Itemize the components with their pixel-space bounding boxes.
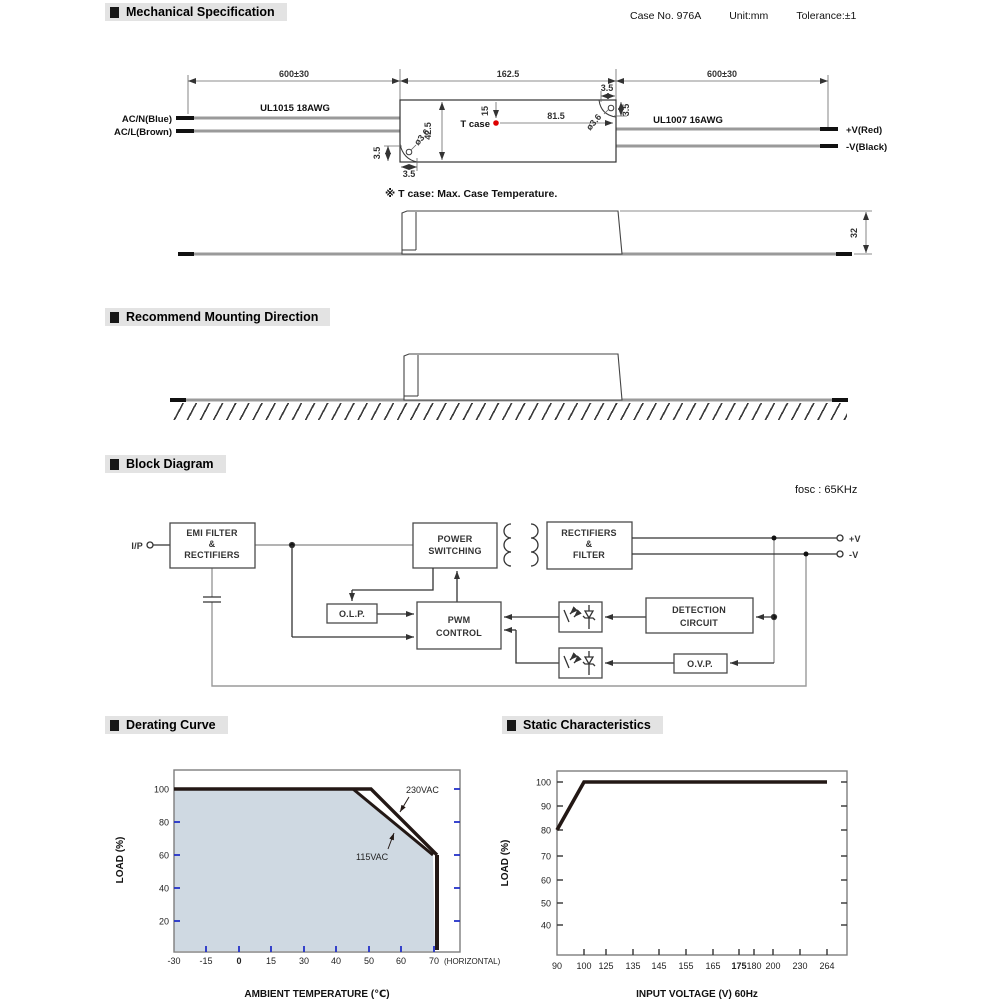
datasheet-page: Mechanical Specification Case No. 976A U… [0, 0, 1000, 1000]
rf-line1: RECTIFIERS [561, 528, 617, 538]
tcase-label: T case [460, 119, 490, 130]
case-top-view: 42.5 T case 15 81.5 ø3.6 3.5 3.5 ø3.6 [372, 83, 631, 179]
x-tick-label: 90 [552, 961, 562, 971]
derating-chart: 100 80 60 40 20 -30 -15 0 15 30 40 50 60… [95, 750, 515, 1000]
tcase-dot [493, 120, 499, 126]
x-tick-label: 135 [625, 961, 640, 971]
y-tick-label: 60 [541, 876, 551, 886]
y-tick-label: 40 [541, 921, 551, 931]
y-tick-label: 80 [159, 818, 169, 828]
section-header-static: Static Characteristics [502, 716, 663, 734]
section-bullet-icon [110, 312, 119, 323]
ip-terminal [147, 542, 153, 548]
pwm-line1: PWM [448, 615, 471, 625]
y-tick-label: 20 [159, 917, 169, 927]
x-tick-label: 40 [331, 956, 341, 966]
vminus-terminal [837, 551, 843, 557]
emi-line1: EMI FILTER [186, 528, 238, 538]
ip-label: I/P [131, 541, 143, 551]
pwm-box: PWM CONTROL [417, 602, 501, 649]
section-header-derating: Derating Curve [105, 716, 228, 734]
x-tick-label: 155 [678, 961, 693, 971]
x-tick-label: 175 [731, 961, 746, 971]
x-tick-label: 60 [396, 956, 406, 966]
olp-box: O.L.P. [327, 604, 377, 623]
x-tick-label: 15 [266, 956, 276, 966]
transformer-symbol [504, 524, 538, 566]
input-wires: AC/N(Blue) AC/L(Brown) UL1015 18AWG [114, 103, 400, 138]
section-title: Recommend Mounting Direction [126, 310, 318, 324]
section-title: Block Diagram [126, 457, 214, 471]
section-header-block: Block Diagram [105, 455, 226, 473]
x-tick-label: 180 [746, 961, 761, 971]
pwm-line2: CONTROL [436, 628, 482, 638]
y-tick-label: 60 [159, 851, 169, 861]
dim-wire-right: 600±30 [616, 69, 828, 81]
emi-line3: RECTIFIERS [184, 550, 240, 560]
section-title: Mechanical Specification [126, 5, 275, 19]
ovp-box: O.V.P. [674, 654, 727, 673]
wire-vplus-label: +V(Red) [846, 125, 882, 136]
dim-case-length: 162.5 [400, 69, 616, 81]
detection-box: DETECTION CIRCUIT [646, 598, 753, 633]
dim-wire-left: 600±30 [188, 69, 400, 81]
det-line1: DETECTION [672, 605, 726, 615]
x-axis-ticks [584, 949, 827, 955]
dim-hole-tr-v: 3.5 [621, 104, 631, 117]
dim-tcase-y: 15 [480, 106, 490, 116]
ps-line1: POWER [437, 534, 472, 544]
section-title: Static Characteristics [523, 718, 651, 732]
x-tick-label: 264 [819, 961, 834, 971]
rf-line3: FILTER [573, 550, 605, 560]
ps-line2: SWITCHING [428, 546, 481, 556]
wire-acn-label: AC/N(Blue) [122, 114, 172, 125]
y-axis-title: LOAD (%) [115, 837, 126, 884]
section-bullet-icon [110, 720, 119, 731]
dim-case-height: 32 [849, 228, 859, 238]
det-line2: CIRCUIT [680, 618, 718, 628]
drawing-meta: Case No. 976A Unit:mm Tolerance:±1 [630, 10, 856, 22]
x-tick-label: 50 [364, 956, 374, 966]
x-tick-label: -15 [199, 956, 212, 966]
case-no-label: Case No. 976A [630, 10, 701, 22]
emi-box: EMI FILTER & RECTIFIERS [170, 523, 255, 568]
mounted-case [404, 354, 622, 400]
mounting-drawing [0, 340, 1000, 425]
y-tick-label: 40 [159, 884, 169, 894]
case-side-view: 32 [178, 211, 872, 256]
unit-label: Unit:mm [729, 10, 768, 22]
x-tick-label: 230 [792, 961, 807, 971]
x-tick-label: 200 [765, 961, 780, 971]
y-tick-label: 70 [541, 852, 551, 862]
x-tick-label: 125 [598, 961, 613, 971]
x-tick-label: 70 [429, 956, 439, 966]
section-bullet-icon [507, 720, 516, 731]
y-axis-title: LOAD (%) [500, 840, 511, 887]
y-tick-label: 50 [541, 899, 551, 909]
series-label-230vac: 230VAC [406, 785, 439, 795]
tolerance-label: Tolerance:±1 [796, 10, 856, 22]
power-switching-box: POWER SWITCHING [413, 523, 497, 568]
optocoupler-icon [559, 648, 602, 678]
section-header-mounting: Recommend Mounting Direction [105, 308, 330, 326]
load-line [557, 782, 827, 830]
static-characteristics-chart: 100 90 80 70 60 50 40 90 100 125 135 145… [490, 750, 900, 1000]
x-tick-label: 165 [705, 961, 720, 971]
y-tick-label: 90 [541, 802, 551, 812]
section-header-mechanical: Mechanical Specification [105, 3, 287, 21]
dim-hole-bl-v: 3.5 [372, 147, 382, 160]
dim-text: 600±30 [279, 69, 309, 79]
fosc-label: fosc : 65KHz [795, 484, 857, 496]
olp-label: O.L.P. [339, 609, 365, 619]
y-tick-label: 80 [541, 826, 551, 836]
section-bullet-icon [110, 7, 119, 18]
output-wires: +V(Red) -V(Black) UL1007 16AWG [616, 115, 887, 153]
rf-line2: & [586, 539, 593, 549]
y-tick-label: 100 [536, 778, 551, 788]
vminus-label: -V [849, 550, 858, 560]
wire-left-type-label: UL1015 18AWG [260, 103, 330, 114]
dim-text: 600±30 [707, 69, 737, 79]
emi-line2: & [209, 539, 216, 549]
x-tick-label: 0 [236, 956, 241, 966]
x-axis-title: AMBIENT TEMPERATURE (℃) [244, 989, 389, 1000]
dim-text: 162.5 [497, 69, 520, 79]
vplus-label: +V [849, 534, 861, 544]
dim-tcase-x: 81.5 [547, 111, 565, 121]
output-terminals: +V -V [632, 534, 861, 560]
section-title: Derating Curve [126, 718, 216, 732]
section-bullet-icon [110, 459, 119, 470]
mechanical-drawing: 600±30 162.5 600±30 AC/N(Blue) AC/L(Brow… [0, 55, 1000, 270]
x-tick-label: 30 [299, 956, 309, 966]
optocoupler-icon [559, 602, 602, 632]
ovp-label: O.V.P. [687, 659, 713, 669]
dim-hole-bl-h: 3.5 [403, 169, 416, 179]
x-axis-title: INPUT VOLTAGE (V) 60Hz [636, 989, 758, 1000]
tcase-note: ※ T case: Max. Case Temperature. [385, 188, 557, 200]
x-tick-label: -30 [167, 956, 180, 966]
x-tick-label: 145 [651, 961, 666, 971]
vplus-terminal [837, 535, 843, 541]
wire-right-type-label: UL1007 16AWG [653, 115, 723, 126]
dim-hole-tr-h: 3.5 [601, 83, 614, 93]
wire-vminus-label: -V(Black) [846, 142, 887, 153]
y-tick-label: 100 [154, 785, 169, 795]
capacitor-symbol [203, 597, 221, 602]
rectifiers-filter-box: RECTIFIERS & FILTER [547, 522, 632, 569]
y-axis-ticks [557, 782, 847, 925]
block-diagram: I/P EMI FILTER & RECTIFIERS POWER SWITCH… [0, 505, 1000, 705]
series-label-115vac: 115VAC [356, 852, 389, 862]
plot-frame [557, 771, 847, 955]
x-tick-label: 100 [576, 961, 591, 971]
wire-acl-label: AC/L(Brown) [114, 127, 172, 138]
